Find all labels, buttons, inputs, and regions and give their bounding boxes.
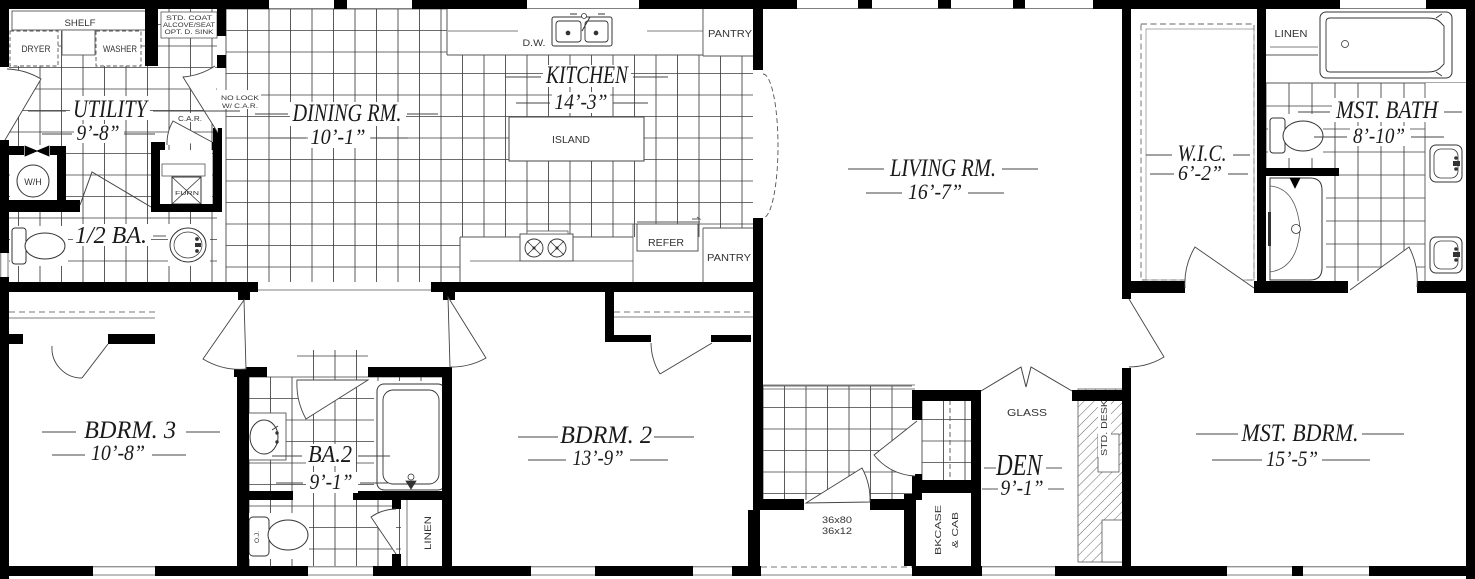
svg-text:9’-8”: 9’-8” <box>77 120 120 145</box>
svg-text:& CAB: & CAB <box>950 512 960 548</box>
svg-text:6’-2”: 6’-2” <box>1178 161 1222 185</box>
svg-text:W/H: W/H <box>24 177 42 187</box>
svg-text:WASHER: WASHER <box>103 44 137 54</box>
svg-text:ALCOVE/SEAT: ALCOVE/SEAT <box>163 22 215 29</box>
svg-text:MST. BATH: MST. BATH <box>1335 97 1440 124</box>
svg-text:1/2 BA.: 1/2 BA. <box>75 223 147 249</box>
svg-text:MST. BDRM.: MST. BDRM. <box>1241 420 1359 447</box>
svg-text:KITCHEN: KITCHEN <box>545 62 629 89</box>
svg-text:BKCASE: BKCASE <box>933 505 943 555</box>
svg-text:LINEN: LINEN <box>1275 29 1308 40</box>
svg-text:C.A.R.: C.A.R. <box>178 116 202 123</box>
svg-text:D.W.: D.W. <box>523 38 546 49</box>
svg-text:STD. DESK: STD. DESK <box>1100 399 1109 456</box>
svg-text:GLASS: GLASS <box>1007 407 1047 419</box>
svg-text:OPT. D. SINK: OPT. D. SINK <box>165 29 215 36</box>
svg-text:9’-1”: 9’-1” <box>1001 475 1044 500</box>
svg-text:O.J.: O.J. <box>254 531 261 543</box>
svg-text:LINEN: LINEN <box>423 516 433 550</box>
svg-text:BA.2: BA.2 <box>308 442 352 468</box>
svg-text:SHELF: SHELF <box>65 18 96 29</box>
svg-text:9’-1”: 9’-1” <box>310 469 353 494</box>
svg-text:15’-5”: 15’-5” <box>1266 446 1318 471</box>
svg-text:10’-1”: 10’-1” <box>311 124 366 149</box>
svg-text:13’-9”: 13’-9” <box>573 445 624 470</box>
svg-text:REFER: REFER <box>648 238 684 249</box>
svg-text:STD. COAT: STD. COAT <box>166 15 212 22</box>
svg-text:8’-10”: 8’-10” <box>1353 123 1405 148</box>
svg-text:DINING RM.: DINING RM. <box>292 100 402 127</box>
svg-text:16’-7”: 16’-7” <box>908 179 962 204</box>
svg-text:PANTRY: PANTRY <box>707 253 751 264</box>
svg-text:PANTRY: PANTRY <box>708 29 752 40</box>
svg-text:LIVING RM.: LIVING RM. <box>889 155 996 182</box>
svg-text:14’-3”: 14’-3” <box>555 89 608 114</box>
svg-text:FURN: FURN <box>175 191 199 197</box>
svg-text:UTILITY: UTILITY <box>73 96 150 123</box>
svg-text:ISLAND: ISLAND <box>552 135 590 146</box>
svg-text:DRYER: DRYER <box>22 44 51 54</box>
svg-text:10’-8”: 10’-8” <box>91 440 145 465</box>
svg-text:NO LOCK: NO LOCK <box>221 95 260 102</box>
svg-text:36x12: 36x12 <box>822 526 852 537</box>
svg-text:W/ C.A.R.: W/ C.A.R. <box>222 103 258 110</box>
svg-text:36x80: 36x80 <box>822 515 852 526</box>
